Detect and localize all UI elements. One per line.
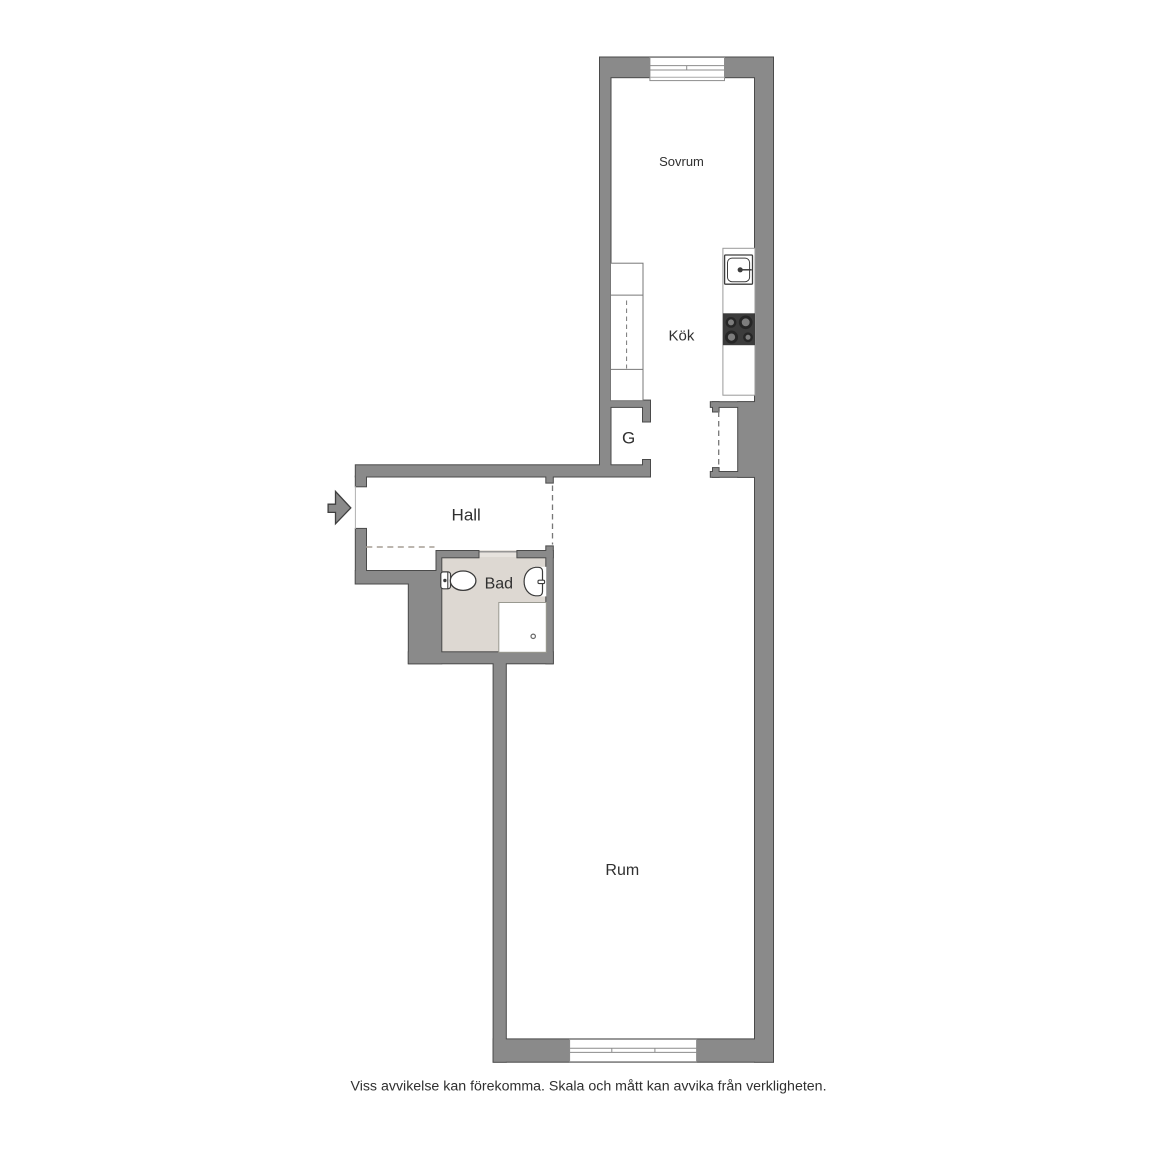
svg-text:Rum: Rum [605, 862, 639, 879]
svg-text:Viss avvikelse kan förekomma.: Viss avvikelse kan förekomma. Skala och … [350, 1079, 826, 1095]
svg-text:Sovrum: Sovrum [659, 154, 704, 169]
svg-text:Kök: Kök [668, 328, 694, 345]
svg-text:G: G [622, 429, 635, 448]
svg-text:Bad: Bad [485, 576, 513, 593]
svg-text:Hall: Hall [452, 506, 481, 525]
